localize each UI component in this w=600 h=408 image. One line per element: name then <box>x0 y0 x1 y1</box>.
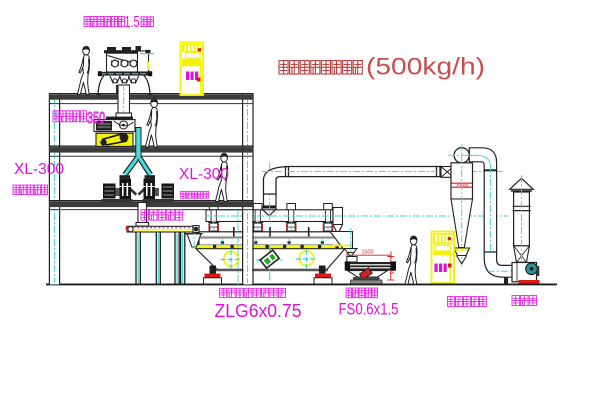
svg-text:XL-300: XL-300 <box>179 166 229 183</box>
svg-text:(500kg/h): (500kg/h) <box>366 53 485 80</box>
svg-text:ZLG6x0.75: ZLG6x0.75 <box>215 300 302 321</box>
svg-text:1500: 1500 <box>362 249 374 255</box>
svg-text:FS0.6x1.5: FS0.6x1.5 <box>339 300 399 319</box>
svg-text:350: 350 <box>87 110 105 127</box>
svg-text:1.5: 1.5 <box>125 14 140 31</box>
svg-text:F600: F600 <box>457 183 469 188</box>
svg-text:XL-300: XL-300 <box>14 161 64 178</box>
